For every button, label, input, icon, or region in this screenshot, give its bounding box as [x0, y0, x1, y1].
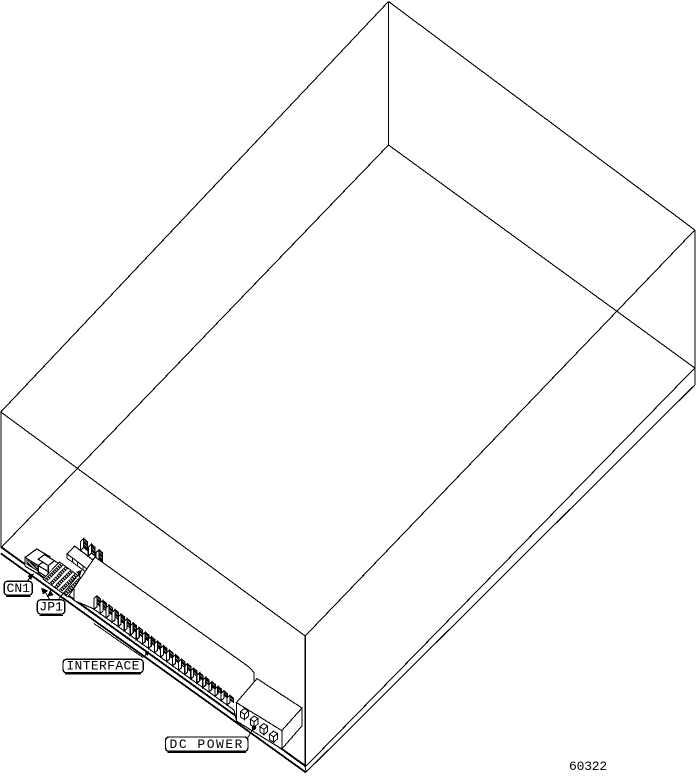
- svg-text:DC POWER: DC POWER: [170, 737, 244, 752]
- svg-text:60322: 60322: [569, 759, 607, 774]
- svg-text:INTERFACE: INTERFACE: [66, 658, 139, 673]
- svg-text:JP1: JP1: [39, 600, 63, 615]
- svg-text:CN1: CN1: [7, 581, 31, 596]
